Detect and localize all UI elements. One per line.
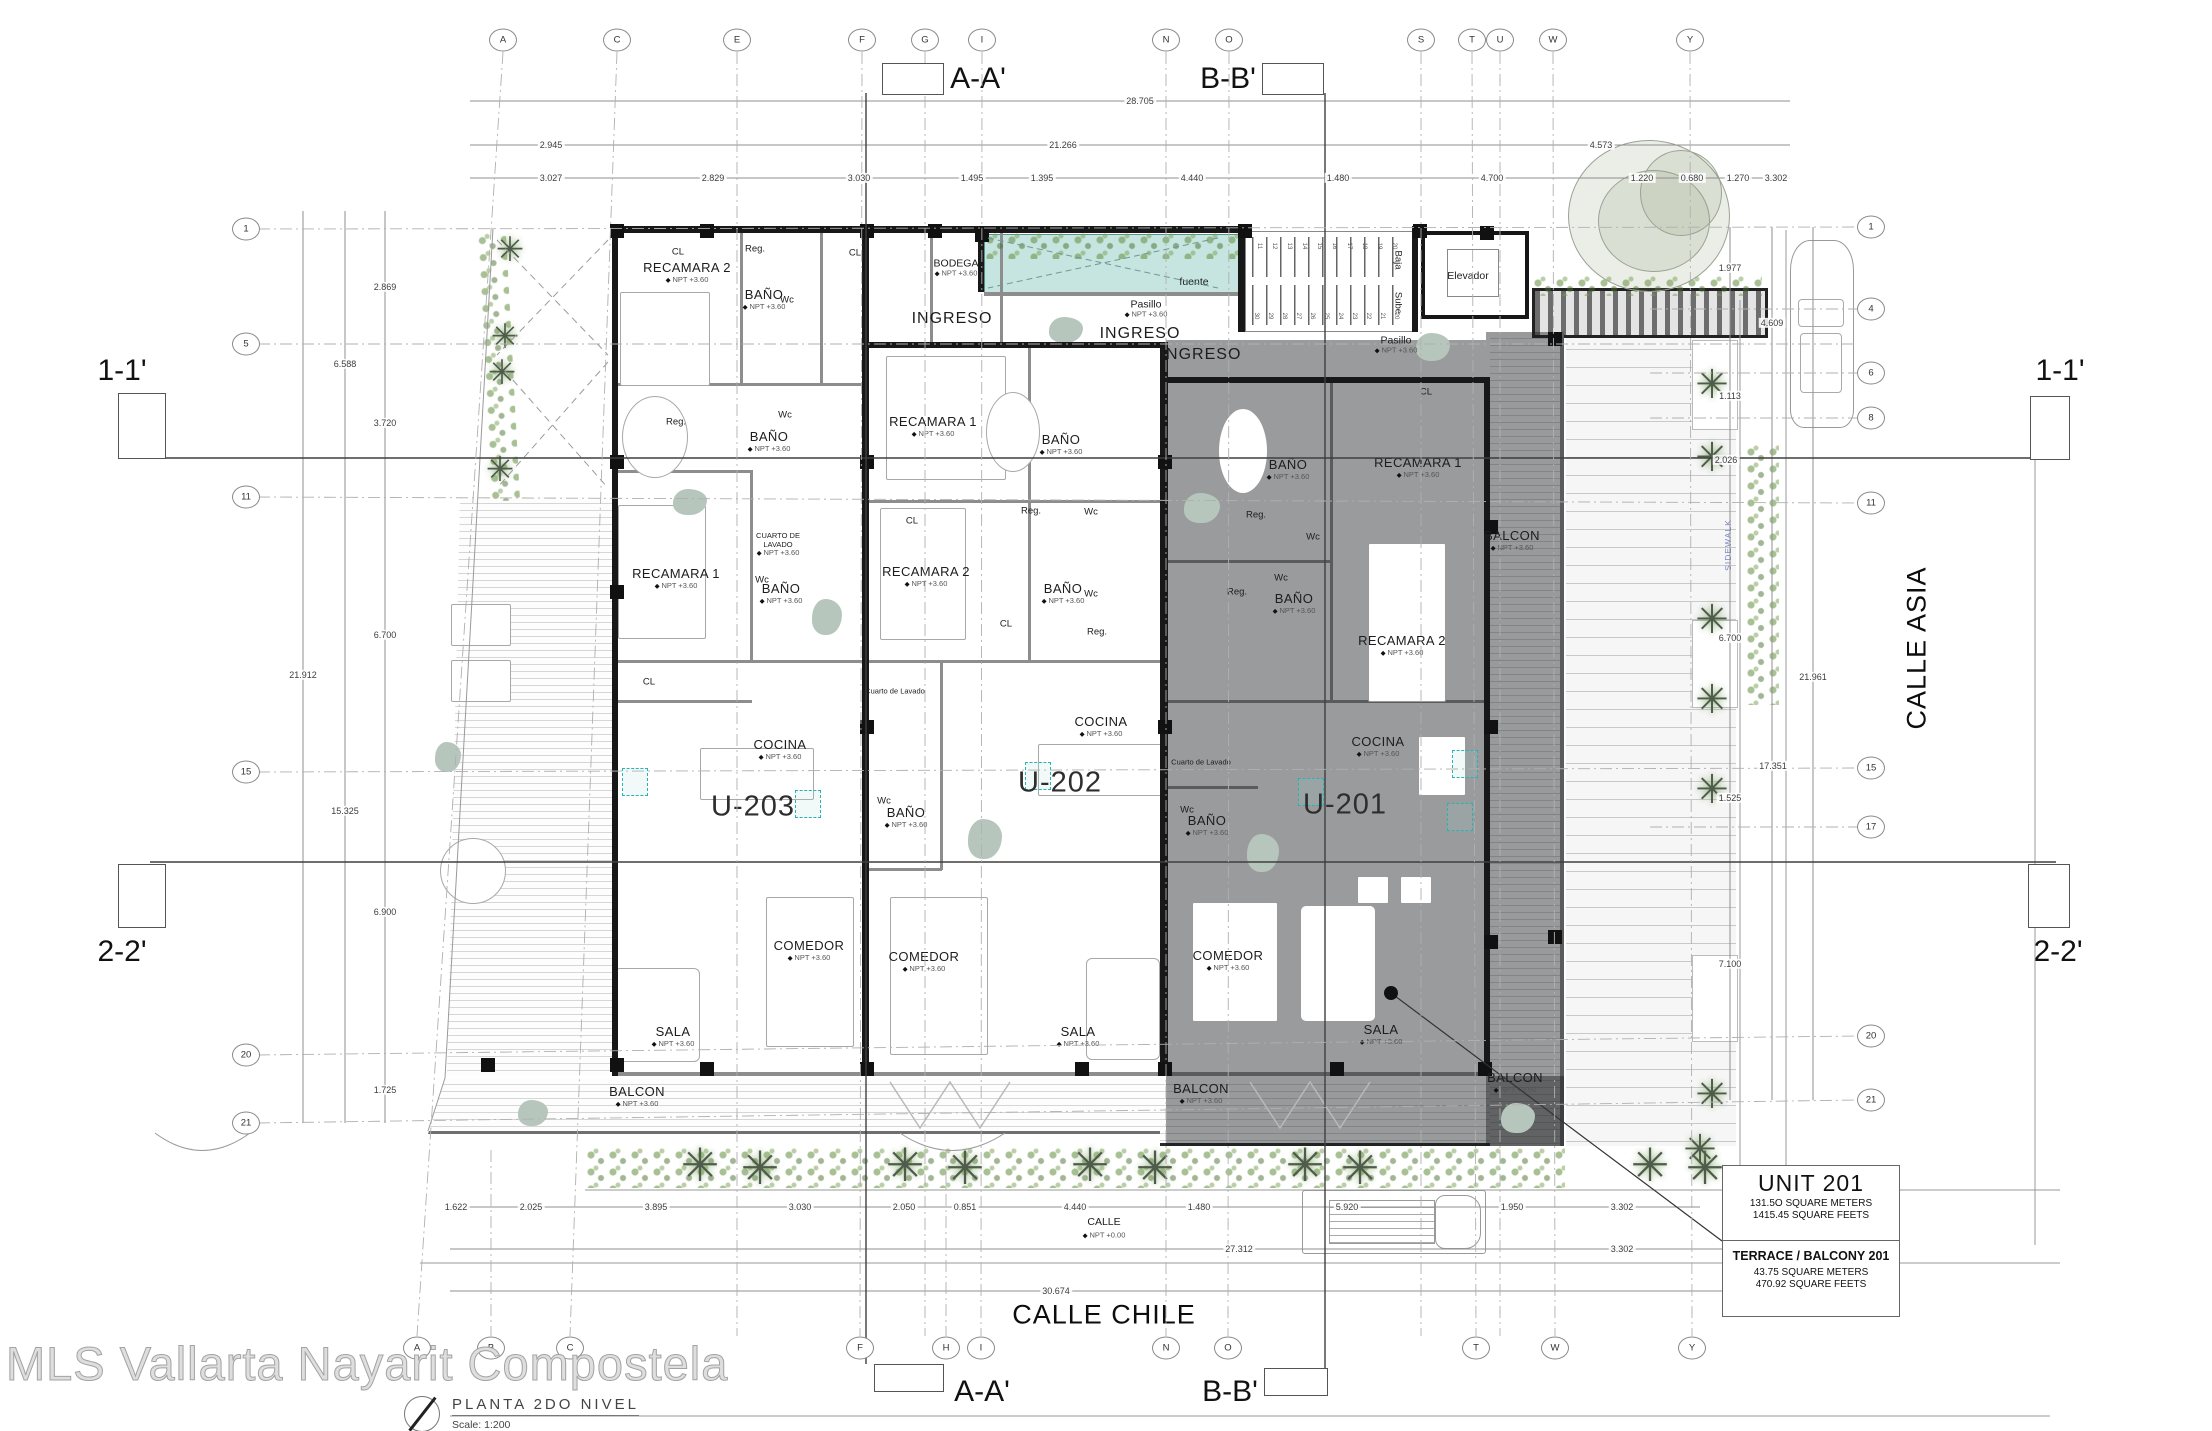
wall-pier (1413, 224, 1427, 238)
unit-201-titleblock: UNIT 201 131.5O SQUARE METERS 1415.45 SQ… (1722, 1165, 1900, 1317)
truck-cab (1435, 1195, 1481, 1249)
label-ba-o: BAÑONPT +3.60 (1273, 592, 1316, 616)
npt-elevation-tag: NPT +3.60 (1042, 597, 1085, 606)
vines-east (1745, 445, 1779, 705)
section-marker-box (118, 864, 166, 928)
partition (618, 700, 752, 703)
npt-elevation-tag: NPT +3.60 (643, 276, 731, 285)
dim-top-0-680: 0.680 (1679, 173, 1706, 183)
terrace-table (440, 838, 506, 904)
stair-number-30: 30 (1253, 313, 1259, 320)
armchair (1357, 876, 1389, 904)
npt-elevation-tag: NPT +3.60 (1358, 649, 1446, 658)
dim-left-2-869: 2.869 (372, 282, 399, 292)
npt-elevation-tag: NPT +3.60 (1186, 829, 1229, 838)
palm-tree-icon: ✳ (1136, 1141, 1175, 1195)
label-reg: Reg. (1227, 588, 1247, 599)
car-roof (1800, 333, 1842, 393)
label-pasillo: PasilloNPT +3.60 (1125, 299, 1168, 320)
palm-tree-icon: ✳ (1695, 767, 1729, 813)
npt-elevation-tag: NPT +3.60 (1267, 473, 1310, 482)
wall-pier (1158, 720, 1172, 734)
label-cocina: COCINANPT +3.60 (1075, 715, 1128, 739)
dim-right-4-609: 4.609 (1759, 318, 1786, 328)
label-recamara-1: RECAMARA 1NPT +3.60 (889, 415, 977, 439)
dim-top-28-705: 28.705 (1124, 96, 1156, 106)
label-u-201: U-201 (1303, 788, 1387, 821)
dim-bottom-1-480: 1.480 (1186, 1202, 1213, 1212)
dim-left-1-725: 1.725 (372, 1085, 399, 1095)
section-label-11-left: 1-1' (97, 354, 146, 389)
dim-bottom-0-851: 0.851 (952, 1202, 979, 1212)
grid-bubble-I-top: I (968, 29, 996, 52)
label-elevador: Elevador (1447, 270, 1488, 282)
grid-bubble-C-top: C (603, 29, 631, 52)
npt-elevation-tag: NPT +3.60 (748, 445, 791, 454)
stair-number-24: 24 (1337, 313, 1343, 320)
stair-number-21: 21 (1379, 313, 1385, 320)
palm-tree-icon: ✳ (1286, 1138, 1325, 1192)
watermark: MLS Vallarta Nayarit Compostela (6, 1336, 728, 1391)
npt-elevation-tag: NPT +3.60 (885, 821, 928, 830)
north-needle (408, 1397, 436, 1431)
bathtub (986, 392, 1040, 472)
dim-right-2-026: 2.026 (1713, 455, 1740, 465)
label-sala: SALANPT +3.60 (1057, 1025, 1100, 1049)
grid-bubble-15-right: 15 (1857, 757, 1885, 780)
stair-number-28: 28 (1281, 313, 1287, 320)
npt-elevation-tag: NPT +3.60 (1040, 448, 1083, 457)
dim-top-2-945: 2.945 (538, 140, 565, 150)
label-ba-o: BAÑONPT +3.60 (1040, 433, 1083, 457)
label-cl: CL (672, 248, 684, 259)
partition (1028, 348, 1031, 660)
dim-bottom-1-622: 1.622 (443, 1202, 470, 1212)
wall-pier (610, 224, 624, 238)
wall-pier (700, 1062, 714, 1076)
lounger (451, 604, 511, 646)
dim-top-4-573: 4.573 (1588, 140, 1615, 150)
npt-elevation-tag: NPT +3.60 (1360, 1038, 1403, 1047)
wall-u203-west (612, 226, 618, 1076)
section-marker-box (882, 63, 944, 95)
dim-right-1-977: 1.977 (1717, 263, 1744, 273)
wall-pier (1075, 1062, 1089, 1076)
dim-bottom-5-920: 5.920 (1334, 1202, 1361, 1212)
car-top-view (1790, 240, 1854, 428)
stair-number-12: 12 (1271, 243, 1277, 250)
grid-bubble-O-bottom: O (1214, 1337, 1242, 1360)
stair-number-14: 14 (1301, 243, 1307, 250)
label-wc: Wc (1306, 533, 1320, 544)
partition (869, 500, 1161, 503)
npt-elevation-tag: NPT +3.60 (1057, 1040, 1100, 1049)
label-ingreso: INGRESO (1161, 346, 1242, 364)
grid-bubble-21-left: 21 (232, 1112, 260, 1135)
street-npt: NPT +0.00 (1083, 1232, 1126, 1241)
grid-bubble-11-left: 11 (232, 486, 260, 509)
label-cl: CL (643, 678, 655, 689)
dim-top-1-480: 1.480 (1325, 173, 1352, 183)
wall-pier (1484, 935, 1498, 949)
dim-top-3-030: 3.030 (846, 173, 873, 183)
sidewalk-label: SIDEWALK (1724, 519, 1734, 571)
label-ingreso: INGRESO (1100, 325, 1181, 343)
wall-pier (700, 224, 714, 238)
wall-pier (610, 585, 624, 599)
label-cl: CL (1420, 388, 1432, 399)
partition (869, 660, 1161, 663)
label-recamara-2: RECAMARA 2NPT +3.60 (643, 261, 731, 285)
wall-pier (860, 720, 874, 734)
npt-elevation-tag: NPT +3.60 (609, 1100, 665, 1109)
sofa-highlighted (1300, 905, 1376, 1022)
grid-bubble-N-top: N (1152, 29, 1180, 52)
npt-elevation-tag: NPT +3.60 (652, 1040, 695, 1049)
stair-number-15: 15 (1316, 243, 1322, 250)
label-wc: Wc (1084, 590, 1098, 601)
dim-bottom-30-674: 30.674 (1040, 1286, 1072, 1296)
npt-elevation-tag: NPT +3.60 (754, 753, 807, 762)
stair-number-20: 20 (1391, 243, 1397, 250)
tree-canopy (1640, 150, 1722, 236)
grid-bubble-S-top: S (1407, 29, 1435, 52)
grid-bubble-W-bottom: W (1541, 1337, 1569, 1360)
npt-elevation-tag: NPT +3.60 (774, 954, 845, 963)
wall-pier (1548, 332, 1562, 346)
label-baja: Baja (1392, 250, 1403, 269)
terrace-area-ft2: 470.92 SQUARE FEETS (1723, 1279, 1899, 1290)
npt-elevation-tag: NPT +3.60 (1193, 964, 1264, 973)
dim-top-1-395: 1.395 (1029, 173, 1056, 183)
label-wc: Wc (1084, 508, 1098, 519)
stair-number-29: 29 (1267, 313, 1273, 320)
label-cocina: COCINANPT +3.60 (754, 738, 807, 762)
wall-u203-top (612, 226, 872, 233)
label-cocina: COCINANPT +3.60 (1352, 735, 1405, 759)
wall-pier (928, 224, 942, 238)
label-sala: SALANPT +3.60 (652, 1025, 695, 1049)
label-cl: CL (849, 249, 861, 260)
label-comedor: COMEDORNPT +3.60 (1193, 949, 1264, 973)
dim-left-3-720: 3.720 (372, 418, 399, 428)
npt-elevation-tag: NPT +3.60 (756, 549, 800, 558)
palm-tree-icon: ✳ (486, 450, 515, 490)
npt-elevation-tag: NPT +3.60 (934, 270, 979, 279)
label-wc: Wc (1180, 806, 1194, 817)
label-recamara-2: RECAMARA 2NPT +3.60 (882, 565, 970, 589)
wall-stair-east (1412, 226, 1418, 332)
label-cuarto-de-lavado: CUARTO DE LAVADONPT +3.60 (756, 532, 800, 558)
bathtub (1218, 408, 1268, 494)
dim-bottom-3-030: 3.030 (787, 1202, 814, 1212)
section-marker-box (118, 393, 166, 459)
dim-bottom-4-440: 4.440 (1062, 1202, 1089, 1212)
bed-highlighted (1368, 543, 1446, 702)
stair-number-13: 13 (1286, 243, 1292, 250)
section-label-22-left: 2-2' (97, 935, 146, 970)
terrace-area-m2: 43.75 SQUARE METERS (1723, 1267, 1899, 1278)
npt-elevation-tag: NPT +3.60 (632, 582, 720, 591)
dim-top-3-027: 3.027 (538, 173, 565, 183)
palm-tree-icon: ✳ (1695, 677, 1729, 723)
unit201-highlight-overlay (1486, 332, 1564, 1146)
stair-number-17: 17 (1346, 243, 1352, 250)
dim-left-6-700: 6.700 (372, 630, 399, 640)
label-sala: SALANPT +3.60 (1360, 1023, 1403, 1047)
fountain-foliage (984, 233, 1238, 259)
npt-elevation-tag: NPT +3.60 (1484, 544, 1540, 553)
grid-bubble-O-top: O (1215, 29, 1243, 52)
label-reg: Reg. (1087, 628, 1107, 639)
label-cuarto-de-lavado: Cuarto de Lavado (1171, 759, 1231, 768)
street-label-calle: CALLE (1087, 1216, 1120, 1228)
label-balcon: BALCONNPT +3.60 (609, 1085, 665, 1109)
terrace-title: TERRACE / BALCONY 201 (1723, 1249, 1899, 1263)
wall-stair-west (1238, 226, 1245, 332)
npt-elevation-tag: NPT +3.60 (1075, 730, 1128, 739)
stair-number-16: 16 (1331, 243, 1337, 250)
dim-bottom-3-302: 3.302 (1609, 1244, 1636, 1254)
north-indicator (404, 1396, 440, 1431)
palm-tree-icon: ✳ (1695, 1072, 1729, 1118)
section-label-aa-top: A-A' (950, 62, 1006, 97)
stair-number-11: 11 (1256, 243, 1262, 249)
dining-table (890, 897, 988, 1055)
label-reg: Reg. (1246, 511, 1266, 522)
label-wc: Wc (755, 576, 769, 587)
palm-tree-icon: ✳ (488, 353, 517, 393)
wall-pier (860, 455, 874, 469)
npt-elevation-tag: NPT +3.60 (1352, 750, 1405, 759)
section-marker-box (1262, 63, 1324, 95)
wall-pier (1158, 1062, 1172, 1076)
label-fuente: fuente (1179, 276, 1208, 288)
dim-bottom-2-025: 2.025 (518, 1202, 545, 1212)
wall-u201-top (1168, 377, 1490, 383)
dim-top-1-495: 1.495 (959, 173, 986, 183)
dim-bottom-3-302: 3.302 (1609, 1202, 1636, 1212)
dim-left-6-588: 6.588 (332, 359, 359, 369)
label-ba-o: BAÑONPT +3.60 (1042, 582, 1085, 606)
label-reg: Reg. (1021, 507, 1041, 518)
dim-top-1-270: 1.270 (1725, 173, 1752, 183)
truck-top-view (1302, 1190, 1486, 1254)
wall-pier (975, 228, 989, 242)
section-label-bb-bottom: B-B' (1202, 1375, 1258, 1410)
label-wc: Wc (1274, 574, 1288, 585)
dim-top-3-302: 3.302 (1763, 173, 1790, 183)
grid-bubble-U-top: U (1486, 29, 1514, 52)
section-label-aa-bottom: A-A' (954, 1375, 1010, 1410)
section-marker-box (1264, 1368, 1328, 1396)
hvac-fixture-icon (1447, 803, 1473, 831)
dim-top-2-829: 2.829 (700, 173, 727, 183)
label-ingreso: INGRESO (912, 310, 993, 328)
section-marker-box (874, 1364, 944, 1392)
grid-bubble-F-bottom: F (846, 1337, 874, 1360)
label-u-202: U-202 (1018, 766, 1102, 799)
grid-bubble-21-right: 21 (1857, 1089, 1885, 1112)
label-wc: Wc (778, 411, 792, 422)
grid-bubble-I-bottom: I (967, 1337, 995, 1360)
wall-pier (860, 224, 874, 238)
npt-elevation-tag: NPT +3.60 (1374, 471, 1462, 480)
dim-bottom-2-050: 2.050 (891, 1202, 918, 1212)
label-wc: Wc (877, 797, 891, 808)
stair-number-20: 20 (1393, 313, 1399, 320)
grid-bubble-T-bottom: T (1462, 1337, 1490, 1360)
sheet-scale: Scale: 1:200 (452, 1419, 639, 1431)
bed (620, 292, 710, 386)
label-ba-o: BAÑONPT +3.60 (1267, 458, 1310, 482)
npt-elevation-tag: NPT +3.60 (889, 430, 977, 439)
wall-pier (1484, 720, 1498, 734)
label-balcon: BALCONNPT +3.60 (1484, 529, 1540, 553)
dim-left-15-325: 15.325 (329, 806, 361, 816)
grid-bubble-W-top: W (1539, 29, 1567, 52)
grid-bubble-11-right: 11 (1857, 492, 1885, 515)
npt-elevation-tag: NPT +3.60 (1125, 311, 1168, 320)
section-marker-box (2030, 396, 2070, 460)
wall-pier (1238, 224, 1252, 238)
grid-bubble-T-top: T (1458, 29, 1486, 52)
grid-bubble-5-left: 5 (232, 333, 260, 356)
street-label-calle-asia: CALLE ASIA (1901, 566, 1932, 729)
dining-table (766, 897, 854, 1047)
grid-bubble-8-right: 8 (1857, 407, 1885, 430)
palm-tree-icon: ✳ (496, 230, 525, 270)
partition (940, 660, 943, 870)
label-comedor: COMEDORNPT +3.60 (774, 939, 845, 963)
label-cl: CL (906, 517, 918, 528)
grid-bubble-G-top: G (911, 29, 939, 52)
partition (869, 868, 942, 871)
dim-top-4-440: 4.440 (1179, 173, 1206, 183)
label-recamara-2: RECAMARA 2NPT +3.60 (1358, 634, 1446, 658)
dim-left-6-900: 6.900 (372, 907, 399, 917)
label-reg: Reg. (666, 418, 686, 429)
label-reg: Reg. (745, 245, 765, 256)
partition (820, 233, 823, 383)
grid-bubble-6-right: 6 (1857, 362, 1885, 385)
wall-party-u202-u201 (1160, 342, 1168, 1076)
label-balcon: BALCONNPT +3.60 (1487, 1071, 1543, 1095)
npt-elevation-tag: NPT +3.60 (1173, 1097, 1229, 1106)
unit-201-area-ft2: 1415.45 SQUARE FEETS (1723, 1210, 1899, 1221)
sheet-title: PLANTA 2DO NIVEL (452, 1396, 639, 1416)
palm-tree-icon: ✳ (491, 317, 520, 357)
palm-tree-icon: ✳ (741, 1141, 780, 1195)
palm-tree-icon: ✳ (1631, 1138, 1670, 1192)
palm-tree-icon: ✳ (1341, 1141, 1380, 1195)
dim-right-17-351: 17.351 (1757, 761, 1789, 771)
unit-201-title: UNIT 201 (1723, 1170, 1899, 1197)
sheet-title-block: PLANTA 2DO NIVEL Scale: 1:200 (452, 1396, 639, 1431)
dim-right-6-700: 6.700 (1717, 633, 1744, 643)
car-windshield (1798, 299, 1844, 327)
wall-pier (860, 1062, 874, 1076)
grid-bubble-A-top: A (489, 29, 517, 52)
npt-elevation-tag: NPT +3.60 (882, 580, 970, 589)
wall-pier (610, 455, 624, 469)
dim-top-4-700: 4.700 (1479, 173, 1506, 183)
label-bodega: BODEGANPT +3.60 (934, 258, 979, 279)
wall-pier (1330, 1062, 1344, 1076)
hvac-fixture-icon (795, 790, 821, 818)
stair-number-18: 18 (1361, 243, 1367, 250)
armchair (1400, 876, 1432, 904)
grid-bubble-1-right: 1 (1857, 216, 1885, 239)
grid-bubble-N-bottom: N (1152, 1337, 1180, 1360)
grid-bubble-1-left: 1 (232, 218, 260, 241)
label-recamara-1: RECAMARA 1NPT +3.60 (1374, 456, 1462, 480)
dim-bottom-27-312: 27.312 (1223, 1244, 1255, 1254)
hvac-fixture-icon (622, 768, 648, 796)
label-ba-o: BAÑONPT +3.60 (885, 806, 928, 830)
dim-bottom-3-895: 3.895 (643, 1202, 670, 1212)
palm-tree-icon: ✳ (1071, 1138, 1110, 1192)
grid-bubble-15-left: 15 (232, 761, 260, 784)
label-pasillo: PasilloNPT +3.60 (1375, 335, 1418, 356)
npt-elevation-tag: NPT +3.60 (1487, 1086, 1543, 1095)
label-cuarto-de-lavado: Cuarto de Lavado (865, 688, 925, 697)
wall-pier (610, 1058, 624, 1072)
label-sube: Sube (1392, 292, 1403, 314)
grid-bubble-Y-bottom: Y (1678, 1337, 1706, 1360)
npt-elevation-tag: NPT +3.60 (1375, 347, 1418, 356)
terrace-deck (447, 497, 612, 1076)
grid-bubble-E-top: E (723, 29, 751, 52)
partition (618, 660, 864, 663)
unit-201-area-m2: 131.5O SQUARE METERS (1723, 1198, 1899, 1209)
bathtub (622, 396, 688, 478)
grid-bubble-4-right: 4 (1857, 298, 1885, 321)
grid-bubble-20-left: 20 (232, 1044, 260, 1067)
label-wc: Wc (780, 296, 794, 307)
wall-entry-top (869, 226, 1245, 233)
label-ba-o: BAÑONPT +3.60 (743, 288, 786, 312)
section-label-bb-top: B-B' (1200, 62, 1256, 97)
palm-tree-icon: ✳ (886, 1138, 925, 1192)
npt-elevation-tag: NPT +3.60 (1273, 607, 1316, 616)
stair-number-27: 27 (1295, 313, 1301, 320)
dim-right-1-113: 1.113 (1717, 391, 1743, 401)
palm-tree-icon: ✳ (1683, 1127, 1717, 1173)
label-cl: CL (1000, 620, 1012, 631)
stair-number-23: 23 (1351, 313, 1357, 320)
dim-top-21-266: 21.266 (1047, 140, 1079, 150)
dim-top-1-220: 1.220 (1629, 173, 1656, 183)
label-balcon: BALCONNPT +3.60 (1173, 1082, 1229, 1106)
wall-pier (1480, 226, 1494, 240)
wall-pier (1158, 455, 1172, 469)
section-label-22-right: 2-2' (2033, 935, 2082, 970)
label-recamara-1: RECAMARA 1NPT +3.60 (632, 567, 720, 591)
stair-number-26: 26 (1309, 313, 1315, 320)
lounger (451, 660, 511, 702)
section-label-11-right: 1-1' (2035, 354, 2084, 389)
npt-elevation-tag: NPT +3.60 (889, 965, 960, 974)
grid-bubble-17-right: 17 (1857, 816, 1885, 839)
partition (750, 470, 753, 662)
grid-bubble-20-right: 20 (1857, 1025, 1885, 1048)
stair-number-22: 22 (1365, 313, 1371, 320)
wall-fountain-south (984, 292, 1240, 296)
wall-party-u203-u202 (862, 226, 869, 1076)
hvac-fixture-icon (1452, 750, 1478, 778)
palm-tree-icon: ✳ (946, 1141, 985, 1195)
